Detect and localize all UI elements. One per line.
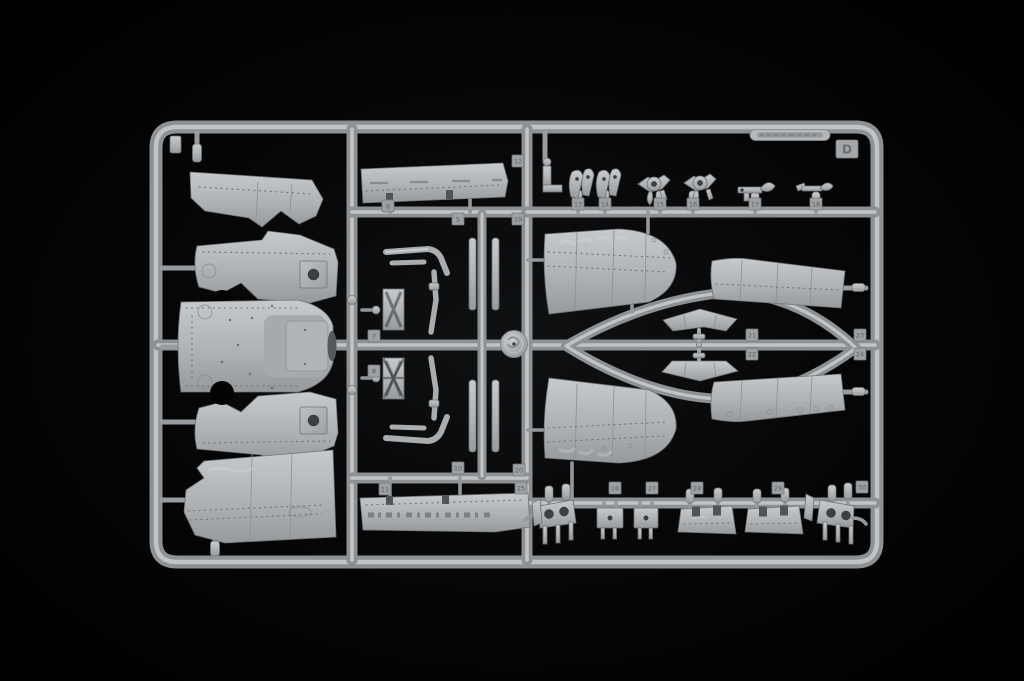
svg-text:13: 13 xyxy=(574,200,582,208)
part-wing-panel-bottom-left xyxy=(184,450,336,543)
svg-text:5: 5 xyxy=(456,215,460,223)
svg-text:29: 29 xyxy=(774,484,782,492)
part-number-tag: 28 xyxy=(691,482,703,494)
svg-text:21: 21 xyxy=(748,331,756,339)
svg-text:22: 22 xyxy=(748,350,756,358)
part-number-tag: 7 xyxy=(368,330,380,342)
part-number-tag: 21 xyxy=(746,329,758,341)
part-number-tag: 16 xyxy=(687,198,699,210)
svg-text:27: 27 xyxy=(648,484,656,492)
corner-tab xyxy=(170,136,181,153)
part-flap-2 xyxy=(745,506,803,535)
svg-text:6: 6 xyxy=(386,202,390,210)
part-stabilizer-lower xyxy=(662,361,738,381)
sprue-illustration: D xyxy=(0,0,1024,681)
svg-text:10: 10 xyxy=(454,464,462,472)
part-number-tag: 19 xyxy=(512,213,524,225)
part-small-box-1 xyxy=(597,508,623,539)
svg-text:14: 14 xyxy=(601,200,609,208)
part-number-tag: 14 xyxy=(599,198,611,210)
part-number-tag: 8 xyxy=(368,365,380,377)
part-fuselage-center xyxy=(178,300,337,392)
part-number-tag: 13 xyxy=(572,198,584,210)
part-number-tag: 11 xyxy=(379,483,391,495)
part-long-strip-bottom xyxy=(360,493,530,532)
sprue-photo: D xyxy=(0,0,1024,681)
svg-text:16: 16 xyxy=(689,200,697,208)
svg-text:20: 20 xyxy=(515,466,523,474)
molded-stamp xyxy=(750,130,830,141)
part-number-tag: 12 xyxy=(512,155,524,167)
part-plate-two-holes-left xyxy=(525,499,576,544)
part-wing-panel-upper-right xyxy=(711,258,845,308)
svg-text:17: 17 xyxy=(751,200,759,208)
svg-text:24: 24 xyxy=(856,350,864,358)
part-wing-panel-lower-right xyxy=(711,374,845,422)
svg-text:23: 23 xyxy=(856,331,864,339)
svg-text:12: 12 xyxy=(514,157,522,165)
part-number-tag: 27 xyxy=(646,482,658,494)
part-flap-1 xyxy=(678,506,736,535)
part-number-tag: 29 xyxy=(772,482,784,494)
svg-text:11: 11 xyxy=(381,485,389,493)
part-bracket-small xyxy=(543,158,562,192)
part-number-tag: 22 xyxy=(746,348,758,360)
sprue-letter: D xyxy=(842,143,852,157)
part-number-tag: 10 xyxy=(452,462,464,474)
part-number-tag: 23 xyxy=(854,329,866,341)
svg-text:7: 7 xyxy=(372,332,376,340)
part-number-tag: 25 xyxy=(515,482,527,494)
part-wing-panel-top-left xyxy=(190,172,323,227)
part-number-tag: 18 xyxy=(810,198,822,210)
svg-text:26: 26 xyxy=(611,484,619,492)
part-number-tag: 26 xyxy=(609,482,621,494)
svg-text:18: 18 xyxy=(812,200,820,208)
svg-text:28: 28 xyxy=(693,484,701,492)
svg-text:15: 15 xyxy=(656,200,664,208)
svg-text:19: 19 xyxy=(514,215,522,223)
svg-text:30: 30 xyxy=(858,483,866,491)
part-number-tag: 30 xyxy=(856,481,868,493)
sprue-letter-tag: D xyxy=(836,140,858,158)
part-center-disc xyxy=(501,331,528,358)
part-number-tag: 20 xyxy=(513,464,525,476)
svg-text:25: 25 xyxy=(517,484,525,492)
part-number-tag: 15 xyxy=(654,198,666,210)
part-small-box-2 xyxy=(634,508,658,539)
part-truss-frame-upper xyxy=(383,289,404,330)
part-long-strip-top xyxy=(361,163,508,203)
part-truss-frame-lower xyxy=(383,358,404,399)
part-hook-bracket-2 xyxy=(796,183,833,191)
svg-text:8: 8 xyxy=(372,367,376,375)
part-number-tag: 17 xyxy=(749,198,761,210)
part-stabilizer-upper xyxy=(663,309,737,331)
part-number-tag: 5 xyxy=(452,213,464,225)
part-number-tag: 24 xyxy=(854,348,866,360)
part-number-tag: 6 xyxy=(382,200,394,212)
